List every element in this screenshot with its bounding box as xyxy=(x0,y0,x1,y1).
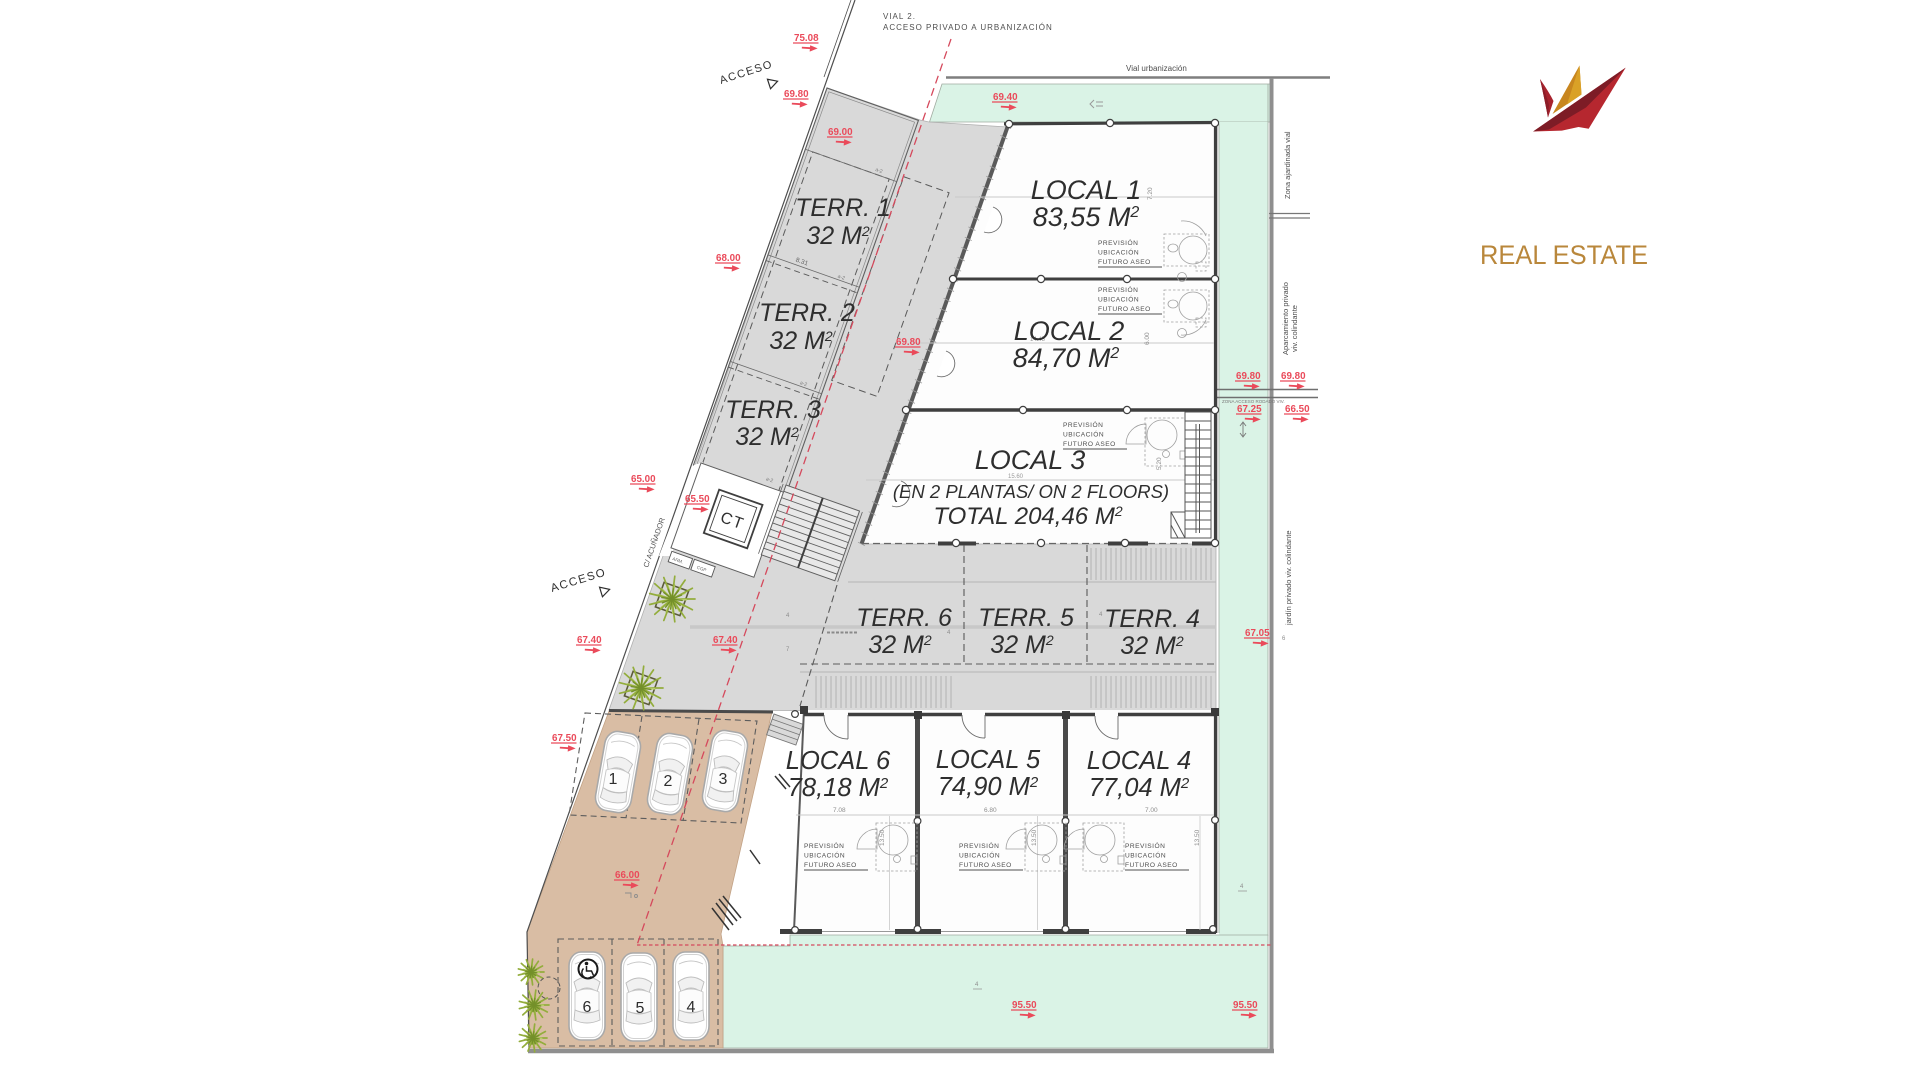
svg-text:LOCAL 3: LOCAL 3 xyxy=(975,445,1086,475)
svg-text:4: 4 xyxy=(687,999,696,1016)
svg-text:TOTAL 204,46 M2: TOTAL 204,46 M2 xyxy=(933,503,1122,530)
svg-text:PREVISIÓN: PREVISIÓN xyxy=(1098,238,1138,247)
svg-text:VIAL 2.: VIAL 2. xyxy=(883,12,916,21)
svg-text:TERR. 2: TERR. 2 xyxy=(759,299,855,327)
svg-text:32 M2: 32 M2 xyxy=(1120,632,1184,660)
svg-text:FUTURO ASEO: FUTURO ASEO xyxy=(804,862,857,869)
svg-text:LOCAL 1: LOCAL 1 xyxy=(1031,175,1142,205)
svg-text:6: 6 xyxy=(583,999,592,1016)
svg-text:84,70 M2: 84,70 M2 xyxy=(1013,343,1120,373)
svg-text:7.00: 7.00 xyxy=(1145,807,1158,814)
svg-text:TERR. 3: TERR. 3 xyxy=(725,396,821,424)
svg-text:LOCAL 2: LOCAL 2 xyxy=(1014,316,1125,346)
svg-text:Vial urbanización: Vial urbanización xyxy=(1126,64,1187,73)
svg-text:32 M2: 32 M2 xyxy=(990,631,1054,659)
svg-text:5.20: 5.20 xyxy=(1156,457,1163,470)
svg-text:TERR. 4: TERR. 4 xyxy=(1104,605,1200,633)
svg-text:LOCAL 4: LOCAL 4 xyxy=(1087,747,1191,775)
svg-text:ACCESO PRIVADO A URBANIZACIÓN: ACCESO PRIVADO A URBANIZACIÓN xyxy=(883,23,1053,32)
svg-text:13.50: 13.50 xyxy=(1031,829,1038,846)
svg-text:PREVISIÓN: PREVISIÓN xyxy=(959,841,999,850)
svg-text:32 M2: 32 M2 xyxy=(868,631,932,659)
svg-text:TERR. 1: TERR. 1 xyxy=(795,194,891,222)
svg-text:PREVISIÓN: PREVISIÓN xyxy=(1125,841,1165,850)
svg-text:jardín privado viv. colindante: jardín privado viv. colindante xyxy=(1284,531,1293,627)
svg-text:7.08: 7.08 xyxy=(833,807,846,814)
svg-text:Zona ajardinada vial: Zona ajardinada vial xyxy=(1283,131,1292,199)
svg-text:6.00: 6.00 xyxy=(1144,332,1151,345)
svg-text:UBICACIÓN: UBICACIÓN xyxy=(1098,248,1139,257)
svg-text:PREVISIÓN: PREVISIÓN xyxy=(1098,285,1138,294)
svg-text:Aparcamiento privado: Aparcamiento privado xyxy=(1281,282,1290,355)
svg-text:77,04 M2: 77,04 M2 xyxy=(1089,774,1190,802)
svg-text:74,90 M2: 74,90 M2 xyxy=(938,773,1039,801)
svg-text:6.80: 6.80 xyxy=(984,807,997,814)
svg-text:LOCAL 5: LOCAL 5 xyxy=(936,746,1041,774)
svg-text:FUTURO ASEO: FUTURO ASEO xyxy=(1098,306,1151,313)
svg-text:FUTURO ASEO: FUTURO ASEO xyxy=(1098,259,1151,266)
svg-text:PREVISIÓN: PREVISIÓN xyxy=(1063,420,1103,429)
svg-text:TERR. 5: TERR. 5 xyxy=(978,604,1074,632)
svg-text:UBICACIÓN: UBICACIÓN xyxy=(1098,295,1139,304)
svg-text:viv. colindante: viv. colindante xyxy=(1290,305,1299,352)
svg-text:REAL ESTATE: REAL ESTATE xyxy=(1480,240,1648,270)
svg-text:32 M2: 32 M2 xyxy=(806,222,870,250)
svg-text:32 M2: 32 M2 xyxy=(769,327,833,355)
svg-text:78,18 M2: 78,18 M2 xyxy=(788,774,889,802)
svg-text:32 M2: 32 M2 xyxy=(735,423,799,451)
svg-text:(EN 2 PLANTAS/ ON 2 FLOORS): (EN 2 PLANTAS/ ON 2 FLOORS) xyxy=(893,481,1169,502)
svg-text:TERR. 6: TERR. 6 xyxy=(856,604,952,632)
svg-text:LOCAL 6: LOCAL 6 xyxy=(786,747,891,775)
svg-text:UBICACIÓN: UBICACIÓN xyxy=(959,851,1000,860)
svg-text:1: 1 xyxy=(609,771,618,788)
svg-text:3: 3 xyxy=(719,771,728,788)
svg-text:FUTURO ASEO: FUTURO ASEO xyxy=(1125,862,1178,869)
svg-text:UBICACIÓN: UBICACIÓN xyxy=(804,851,845,860)
svg-text:83,55 M2: 83,55 M2 xyxy=(1033,202,1140,232)
svg-text:7.20: 7.20 xyxy=(1147,187,1154,200)
svg-text:2: 2 xyxy=(664,773,673,790)
svg-text:UBICACIÓN: UBICACIÓN xyxy=(1063,430,1104,439)
svg-text:5: 5 xyxy=(636,1000,645,1017)
svg-text:FUTURO ASEO: FUTURO ASEO xyxy=(959,862,1012,869)
svg-text:UBICACIÓN: UBICACIÓN xyxy=(1125,851,1166,860)
svg-text:PREVISIÓN: PREVISIÓN xyxy=(804,841,844,850)
